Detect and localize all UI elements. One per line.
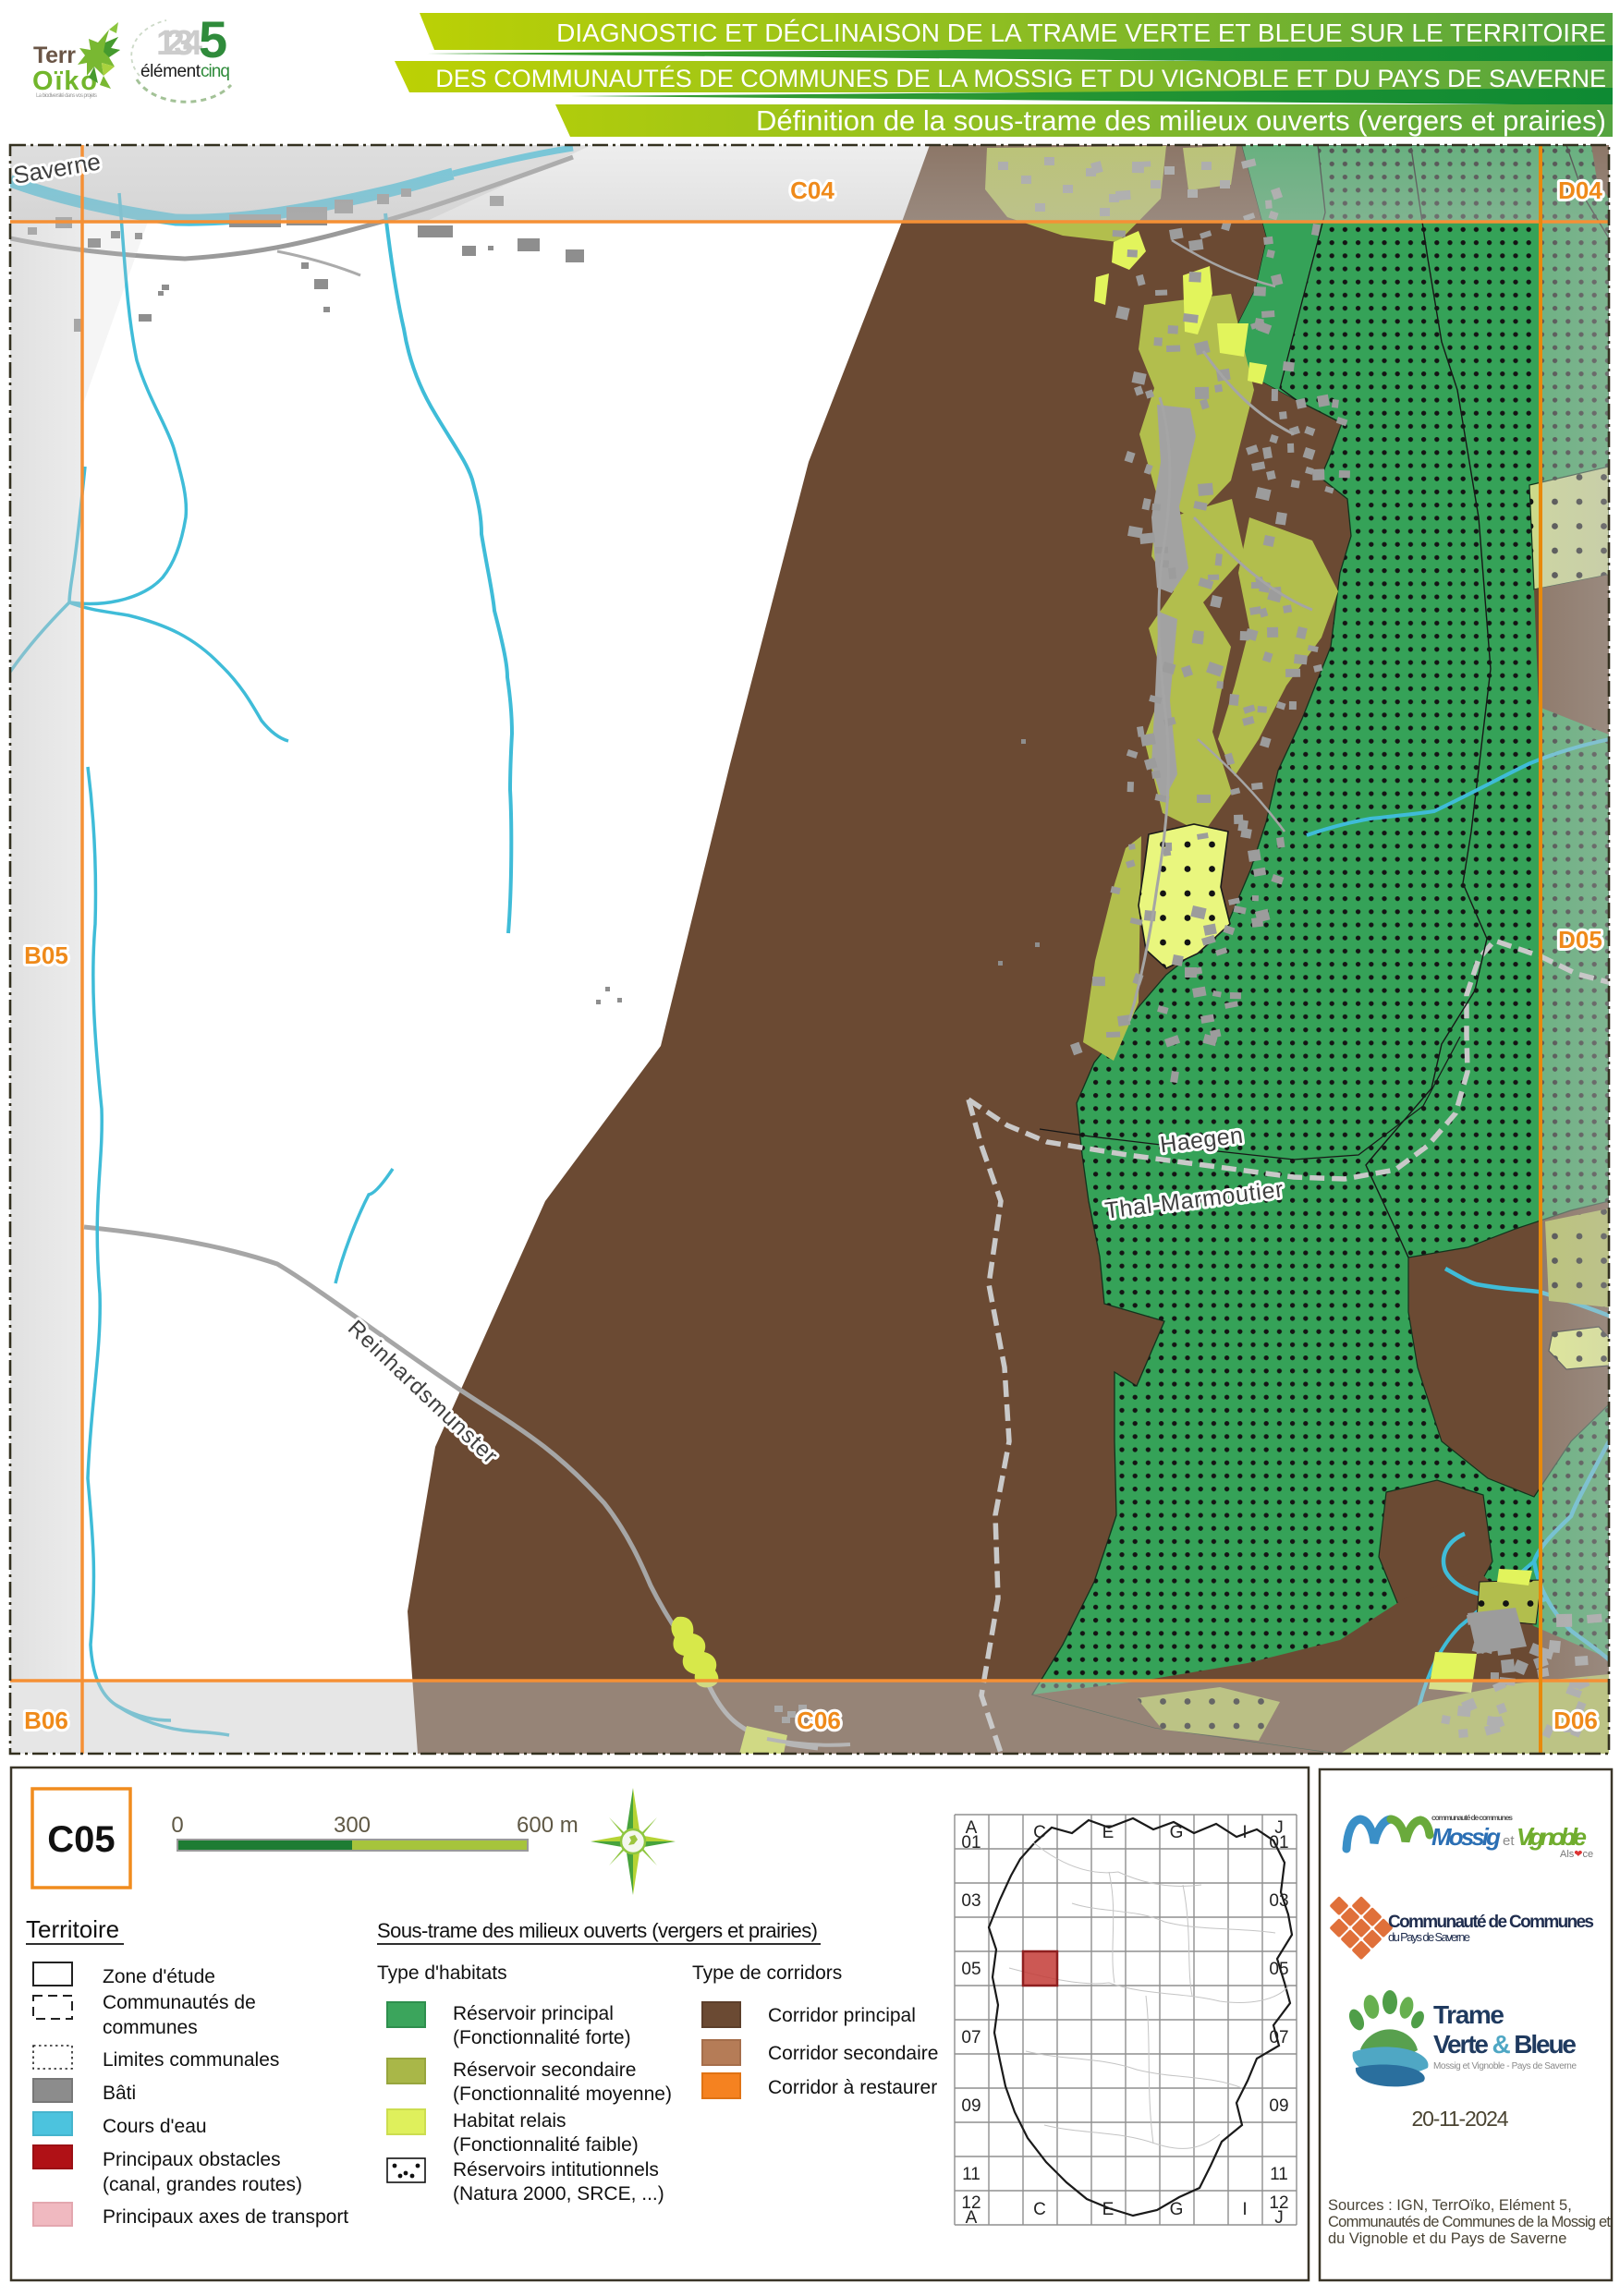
svg-text:C06: C06 <box>797 1707 841 1734</box>
svg-text:J: J <box>1274 2208 1284 2228</box>
svg-text:C: C <box>1033 2200 1046 2219</box>
svg-text:09: 09 <box>1269 2096 1288 2116</box>
svg-text:Définition de la sous-trame de: Définition de la sous-trame des milieux … <box>756 104 1606 137</box>
svg-text:Trame: Trame <box>1433 2000 1504 2029</box>
svg-text:communauté de communes: communauté de communes <box>1431 1813 1513 1822</box>
svg-text:G: G <box>1170 2200 1184 2219</box>
svg-text:5: 5 <box>199 10 227 68</box>
svg-text:11: 11 <box>1270 2165 1288 2184</box>
svg-text:Sources : IGN, TerrOïko, Eléme: Sources : IGN, TerrOïko, Elément 5, <box>1328 2197 1572 2214</box>
svg-text:E: E <box>1102 1823 1115 1842</box>
svg-text:Terr: Terr <box>33 43 76 68</box>
svg-text:Sous-trame des milieux ouverts: Sous-trame des milieux ouverts (vergers … <box>377 1919 818 1942</box>
svg-text:Communautés de: Communautés de <box>103 1992 256 2013</box>
svg-text:07: 07 <box>1269 2028 1288 2047</box>
svg-text:20-11-2024: 20-11-2024 <box>1412 2107 1509 2131</box>
svg-text:D06: D06 <box>1553 1707 1598 1734</box>
svg-text:élément: élément <box>140 62 201 81</box>
svg-text:11: 11 <box>962 2165 981 2184</box>
svg-text:I: I <box>1242 1823 1247 1842</box>
svg-text:Mossig et Vignoble - Pays de S: Mossig et Vignoble - Pays de Saverne <box>1433 2061 1577 2071</box>
svg-text:Corridor à restaurer: Corridor à restaurer <box>768 2077 937 2098</box>
svg-text:05: 05 <box>1269 1960 1288 1979</box>
svg-text:Réservoirs intitutionnels: Réservoirs intitutionnels <box>453 2159 659 2181</box>
svg-text:Als❤ce: Als❤ce <box>1560 1849 1593 1860</box>
svg-text:C04: C04 <box>790 176 834 204</box>
svg-text:Bâti: Bâti <box>103 2083 136 2104</box>
svg-text:Principaux obstacles: Principaux obstacles <box>103 2149 281 2170</box>
svg-text:DIAGNOSTIC ET DÉCLINAISON DE L: DIAGNOSTIC ET DÉCLINAISON DE LA TRAME VE… <box>556 18 1606 47</box>
svg-text:Corridor principal: Corridor principal <box>768 2005 916 2026</box>
svg-text:(canal, grandes routes): (canal, grandes routes) <box>103 2174 302 2195</box>
svg-text:Verte & Bleue: Verte & Bleue <box>1433 2030 1577 2059</box>
svg-text:Vignoble: Vignoble <box>1516 1823 1587 1851</box>
svg-text:09: 09 <box>961 2096 981 2116</box>
svg-text:DES COMMUNAUTÉS DE COMMUNES DE: DES COMMUNAUTÉS DE COMMUNES DE LA MOSSIG… <box>435 65 1606 92</box>
svg-text:cinq: cinq <box>201 62 230 81</box>
svg-text:Type de corridors: Type de corridors <box>692 1962 842 1984</box>
svg-text:03: 03 <box>961 1891 981 1911</box>
svg-text:Limites communales: Limites communales <box>103 2049 279 2071</box>
svg-text:(Fonctionnalité forte): (Fonctionnalité forte) <box>453 2027 631 2048</box>
svg-text:03: 03 <box>1269 1891 1288 1911</box>
svg-text:07: 07 <box>961 2028 981 2047</box>
svg-text:Zone d'étude: Zone d'étude <box>103 1966 215 1987</box>
svg-text:et: et <box>1503 1833 1515 1849</box>
svg-text:(Fonctionnalité moyenne): (Fonctionnalité moyenne) <box>453 2083 672 2105</box>
svg-text:du Pays de Saverne: du Pays de Saverne <box>1388 1930 1470 1944</box>
svg-text:Mossig: Mossig <box>1431 1823 1501 1851</box>
svg-text:Principaux axes de transport: Principaux axes de transport <box>103 2206 348 2228</box>
svg-text:(Fonctionnalité faible): (Fonctionnalité faible) <box>453 2134 639 2156</box>
svg-text:G: G <box>1170 1823 1184 1842</box>
svg-text:01: 01 <box>961 1833 981 1853</box>
svg-text:B05: B05 <box>24 941 68 969</box>
svg-text:0: 0 <box>171 1813 183 1838</box>
svg-text:Réservoir principal: Réservoir principal <box>453 2003 614 2024</box>
svg-text:300: 300 <box>334 1813 371 1838</box>
svg-text:Habitat relais: Habitat relais <box>453 2110 566 2132</box>
svg-text:Réservoir secondaire: Réservoir secondaire <box>453 2059 636 2081</box>
svg-text:Territoire: Territoire <box>26 1915 119 1943</box>
svg-text:01: 01 <box>1269 1833 1288 1853</box>
svg-text:du Vignoble et du Pays de Save: du Vignoble et du Pays de Saverne <box>1328 2230 1566 2247</box>
svg-text:Corridor secondaire: Corridor secondaire <box>768 2043 938 2064</box>
svg-text:Cours d'eau: Cours d'eau <box>103 2116 207 2137</box>
svg-text:La biodiversité dans vos proje: La biodiversité dans vos projets <box>36 93 97 99</box>
svg-text:C: C <box>1033 1823 1046 1842</box>
svg-text:600 m: 600 m <box>517 1813 579 1838</box>
svg-text:D05: D05 <box>1558 926 1602 954</box>
svg-text:B06: B06 <box>24 1707 68 1734</box>
svg-text:Type d'habitats: Type d'habitats <box>377 1962 507 1984</box>
svg-text:05: 05 <box>961 1960 981 1979</box>
svg-text:(Natura 2000, SRCE, ...): (Natura 2000, SRCE, ...) <box>453 2183 664 2205</box>
svg-text:Communauté de Communes: Communauté de Communes <box>1388 1913 1594 1932</box>
svg-text:communes: communes <box>103 2017 198 2038</box>
svg-text:Communautés de Communes de la: Communautés de Communes de la Mossig et <box>1328 2214 1611 2230</box>
svg-text:A: A <box>966 2208 978 2228</box>
svg-text:I: I <box>1242 2200 1247 2219</box>
svg-text:E: E <box>1102 2200 1115 2219</box>
svg-text:C05: C05 <box>47 1819 115 1860</box>
svg-text:1234: 1234 <box>156 24 202 63</box>
svg-text:D04: D04 <box>1558 176 1602 204</box>
